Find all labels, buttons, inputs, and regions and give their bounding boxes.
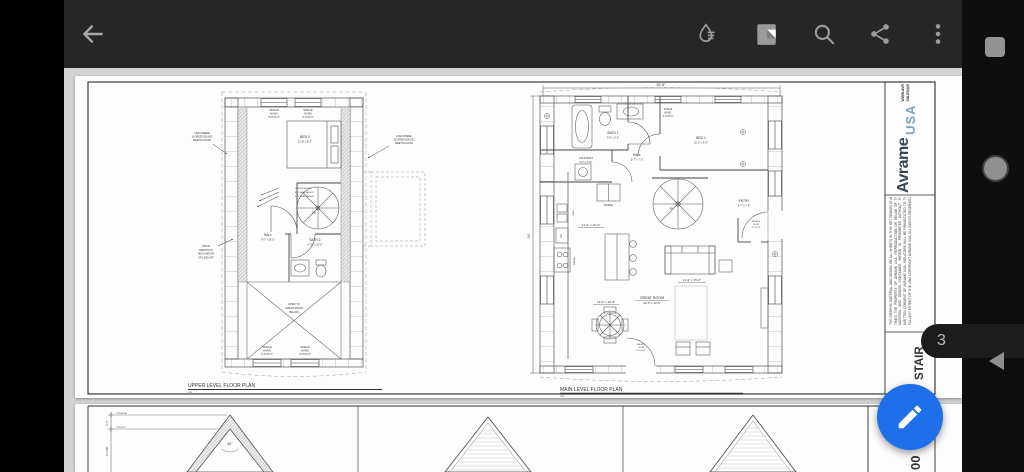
sloped-ceiling-note-right: LINE WHERE bbox=[396, 135, 412, 138]
sloped-ceiling-note-left: LINE WHERE bbox=[194, 132, 210, 135]
aframe-elevation-3 bbox=[710, 415, 796, 472]
pdf-document-canvas[interactable]: SINGLE HUNG 3'-0"x5'-0" SINGLE HUNG 3'-0… bbox=[64, 68, 962, 472]
bath1-dim: 9'-9" x 5'-0" bbox=[607, 136, 619, 139]
hatch-note: HATCH bbox=[202, 245, 210, 248]
upper-window-label-2b: HUNG bbox=[304, 112, 312, 116]
sheet-border bbox=[88, 82, 935, 394]
kitchen-dim: 11'-2" x 12'-2" bbox=[582, 223, 600, 227]
display-cutout-strip bbox=[0, 0, 64, 472]
overflow-menu-button[interactable] bbox=[925, 21, 951, 47]
page-number-badge[interactable]: 3 bbox=[921, 324, 1024, 358]
back-arrow-icon bbox=[80, 21, 106, 47]
french-door-right-label-b: DOOR bbox=[753, 224, 760, 226]
head-height-note-6: 6'-0" HEAD HEIGHT bbox=[295, 195, 315, 198]
upper-window-label-4c: 3'-0"x5'-0" bbox=[299, 352, 311, 356]
upper-window-label-3c: 3'-0"x5'-0" bbox=[261, 352, 273, 356]
bed2-dim: 11'-8" x 9'-3" bbox=[298, 141, 312, 144]
page-layout-button[interactable] bbox=[753, 21, 779, 47]
french-door-bottom-label: FRENCH bbox=[637, 344, 646, 346]
dim-2-5: 2'-5" bbox=[105, 420, 109, 425]
great-room-label: GREAT ROOM bbox=[640, 296, 664, 300]
french-door-right-label-c: 6'-0"x6'-8" bbox=[752, 227, 761, 229]
bath2-label: BATH 2 bbox=[310, 238, 321, 242]
main-window-label-c: 3'-0"x5'-0" bbox=[663, 115, 674, 118]
label-underlines bbox=[578, 227, 706, 304]
sloped-ceiling-note-right-c: MEETS FLOOR bbox=[395, 142, 413, 145]
pencil-icon bbox=[895, 402, 925, 432]
dw-label: DW bbox=[561, 233, 563, 238]
share-button[interactable] bbox=[867, 21, 893, 47]
upper-hall-label: HALL bbox=[264, 233, 272, 237]
main-level-plan-linework bbox=[530, 85, 783, 382]
dim-30-6: 30'-6" bbox=[656, 83, 666, 87]
elevation-dimensions bbox=[108, 412, 227, 472]
copyright-disclaimer-block: THE GRAPHIC MATERIAL AND DESIGN ON ALL S… bbox=[887, 197, 933, 328]
sloped-ceiling-note-left-b: SLOPED CEILING bbox=[192, 136, 213, 139]
elevation-drawing: TOP/RIDGE TOP/LOFT 2'-5" 6'-3 5/8" 60° bbox=[75, 404, 962, 472]
right-system-column bbox=[962, 0, 1024, 472]
ink-drop-icon bbox=[694, 21, 720, 47]
search-icon bbox=[811, 21, 837, 47]
upper-window-label-4: SINGLE bbox=[300, 345, 310, 349]
page-number: 3 bbox=[937, 332, 946, 349]
stair-dn-label: DN bbox=[312, 211, 316, 215]
great-room-dim: 22'-5" x 19'-6" bbox=[643, 301, 660, 305]
search-button[interactable] bbox=[811, 21, 837, 47]
upper-window-label-1b: HUNG bbox=[270, 112, 278, 116]
copyright-disclaimer-text: THE GRAPHIC MATERIAL AND DESIGN ON ALL S… bbox=[887, 197, 933, 328]
upper-window-label-4b: HUNG bbox=[301, 349, 309, 353]
bed1-dim: 11'-2" x 9'-3" bbox=[694, 142, 708, 145]
main-level-plan-labels: 30'-6" 34' BATH 1 9'-9" x 5'-0" LAUNDRY … bbox=[527, 83, 761, 352]
phone-screen: SINGLE HUNG 3'-0"x5'-0" SINGLE HUNG 3'-0… bbox=[0, 0, 1024, 472]
stair-up-label: UP bbox=[669, 207, 673, 211]
bath2-dim: 6'-10" x 10'-6" bbox=[308, 243, 323, 246]
open-to-below-label-c: BELOW bbox=[289, 310, 299, 314]
french-door-bottom-label-c: 6'-0"x6'-8" bbox=[637, 350, 646, 352]
entry-dim: 6'-7" x 7'-9" bbox=[738, 204, 750, 207]
upper-plan-scale: NTS bbox=[188, 392, 193, 394]
floor-plan-drawing: SINGLE HUNG 3'-0"x5'-0" SINGLE HUNG 3'-0… bbox=[75, 76, 962, 398]
upper-level-plan-linework bbox=[213, 92, 425, 377]
fridge-label: FRIDGE bbox=[604, 204, 613, 207]
dim-6-3: 6'-3 5/8" bbox=[105, 446, 109, 456]
upper-window-label-2c: 3'-0"x5'-0" bbox=[302, 115, 314, 119]
edge-panel-handle-icon[interactable] bbox=[982, 155, 1009, 182]
french-door-bottom-label-b: DOOR bbox=[638, 347, 645, 349]
brand-sub: USA bbox=[903, 104, 919, 134]
dining-dim: 13'-2" x 10'-8" bbox=[597, 300, 615, 304]
laundry-label: LAUNDRY bbox=[579, 156, 593, 160]
main-plan-title: MAIN LEVEL FLOOR PLAN bbox=[560, 387, 623, 393]
french-door-right-label: FRENCH bbox=[752, 221, 761, 223]
upper-window-label-1: SINGLE bbox=[269, 108, 279, 112]
back-button[interactable] bbox=[80, 21, 106, 47]
upper-window-label-3b: HUNG bbox=[263, 349, 271, 353]
aframe-elevation-2 bbox=[445, 417, 531, 472]
pdf-page-3: SINGLE HUNG 3'-0"x5'-0" SINGLE HUNG 3'-0… bbox=[75, 76, 962, 398]
level-marker-top: TOP/RIDGE bbox=[116, 413, 128, 415]
main-hall-label: HALL bbox=[633, 153, 641, 157]
dim-34: 34' bbox=[527, 233, 531, 238]
edit-fab-button[interactable] bbox=[877, 384, 943, 450]
open-to-below-label-b: GREAT ROOM bbox=[285, 306, 303, 310]
upper-plan-title: UPPER LEVEL FLOOR PLAN bbox=[188, 383, 255, 389]
open-to-below-label: OPEN TO bbox=[288, 302, 300, 306]
bed1-label: BED 1 bbox=[696, 136, 706, 140]
ceiling-height-note: CEILING HEIGHT bbox=[295, 188, 312, 190]
range-label: RANGE bbox=[573, 257, 576, 265]
upper-window-label-1c: 3'-0"x5'-0" bbox=[268, 115, 280, 119]
laundry-dim: 6'-2" x 4'-10" bbox=[580, 162, 593, 164]
page-layout-icon bbox=[753, 21, 779, 47]
share-icon bbox=[867, 21, 893, 47]
sink-label: SINK bbox=[573, 210, 575, 216]
sheet2-number-vertical: 00 bbox=[908, 456, 923, 470]
sloped-ceiling-note-right-b: SLOPED CEILING bbox=[394, 139, 415, 142]
more-vert-icon bbox=[925, 21, 951, 47]
pdf-page-4-partial: TOP/RIDGE TOP/LOFT 2'-5" 6'-3 5/8" 60° bbox=[75, 404, 962, 472]
brand-email: SALES@AVRAMEUSA.COM bbox=[906, 84, 911, 101]
pdf-viewer-toolbar bbox=[64, 0, 962, 68]
head-height-note-8: 8'-0" HEAD HEIGHT bbox=[295, 191, 315, 194]
ink-annotation-button[interactable] bbox=[694, 21, 720, 47]
main-plan-scale: NTS bbox=[560, 396, 565, 398]
upper-window-label-3: SINGLE bbox=[262, 345, 272, 349]
upper-hall-dim: 9'-7" x 15'-2" bbox=[261, 238, 275, 241]
brand-name: Avrame bbox=[889, 138, 919, 193]
upper-window-label-2: SINGLE bbox=[303, 108, 313, 112]
bed2-label: BED 2 bbox=[300, 135, 310, 139]
avrame-logo-block: Avrame USA WWW.AVRAMEUSA.COM SALES@AVRAM… bbox=[887, 84, 933, 193]
previous-page-triangle-icon[interactable] bbox=[989, 352, 1004, 370]
main-hall-dim: 5'-7" x 7'-2" bbox=[631, 158, 643, 161]
sloped-ceiling-note-left-c: MEETS FLOOR bbox=[193, 139, 211, 142]
angle-arc bbox=[221, 449, 239, 452]
hatch-note-d: OR LESS AFF bbox=[198, 256, 214, 259]
angle-60-label: 60° bbox=[227, 442, 233, 446]
hatch-note-b: DENOTES 5' bbox=[199, 249, 214, 252]
living-dim: 11'-2" x 15'-6" bbox=[683, 278, 701, 282]
floating-tool-handle-icon[interactable] bbox=[985, 37, 1005, 57]
hatch-note-c: HEAD HEIGHT bbox=[198, 253, 215, 256]
entry-label: ENTRY bbox=[739, 199, 751, 203]
bath1-label: BATH 1 bbox=[608, 131, 619, 135]
level-marker-mid: TOP/LOFT bbox=[116, 427, 127, 429]
